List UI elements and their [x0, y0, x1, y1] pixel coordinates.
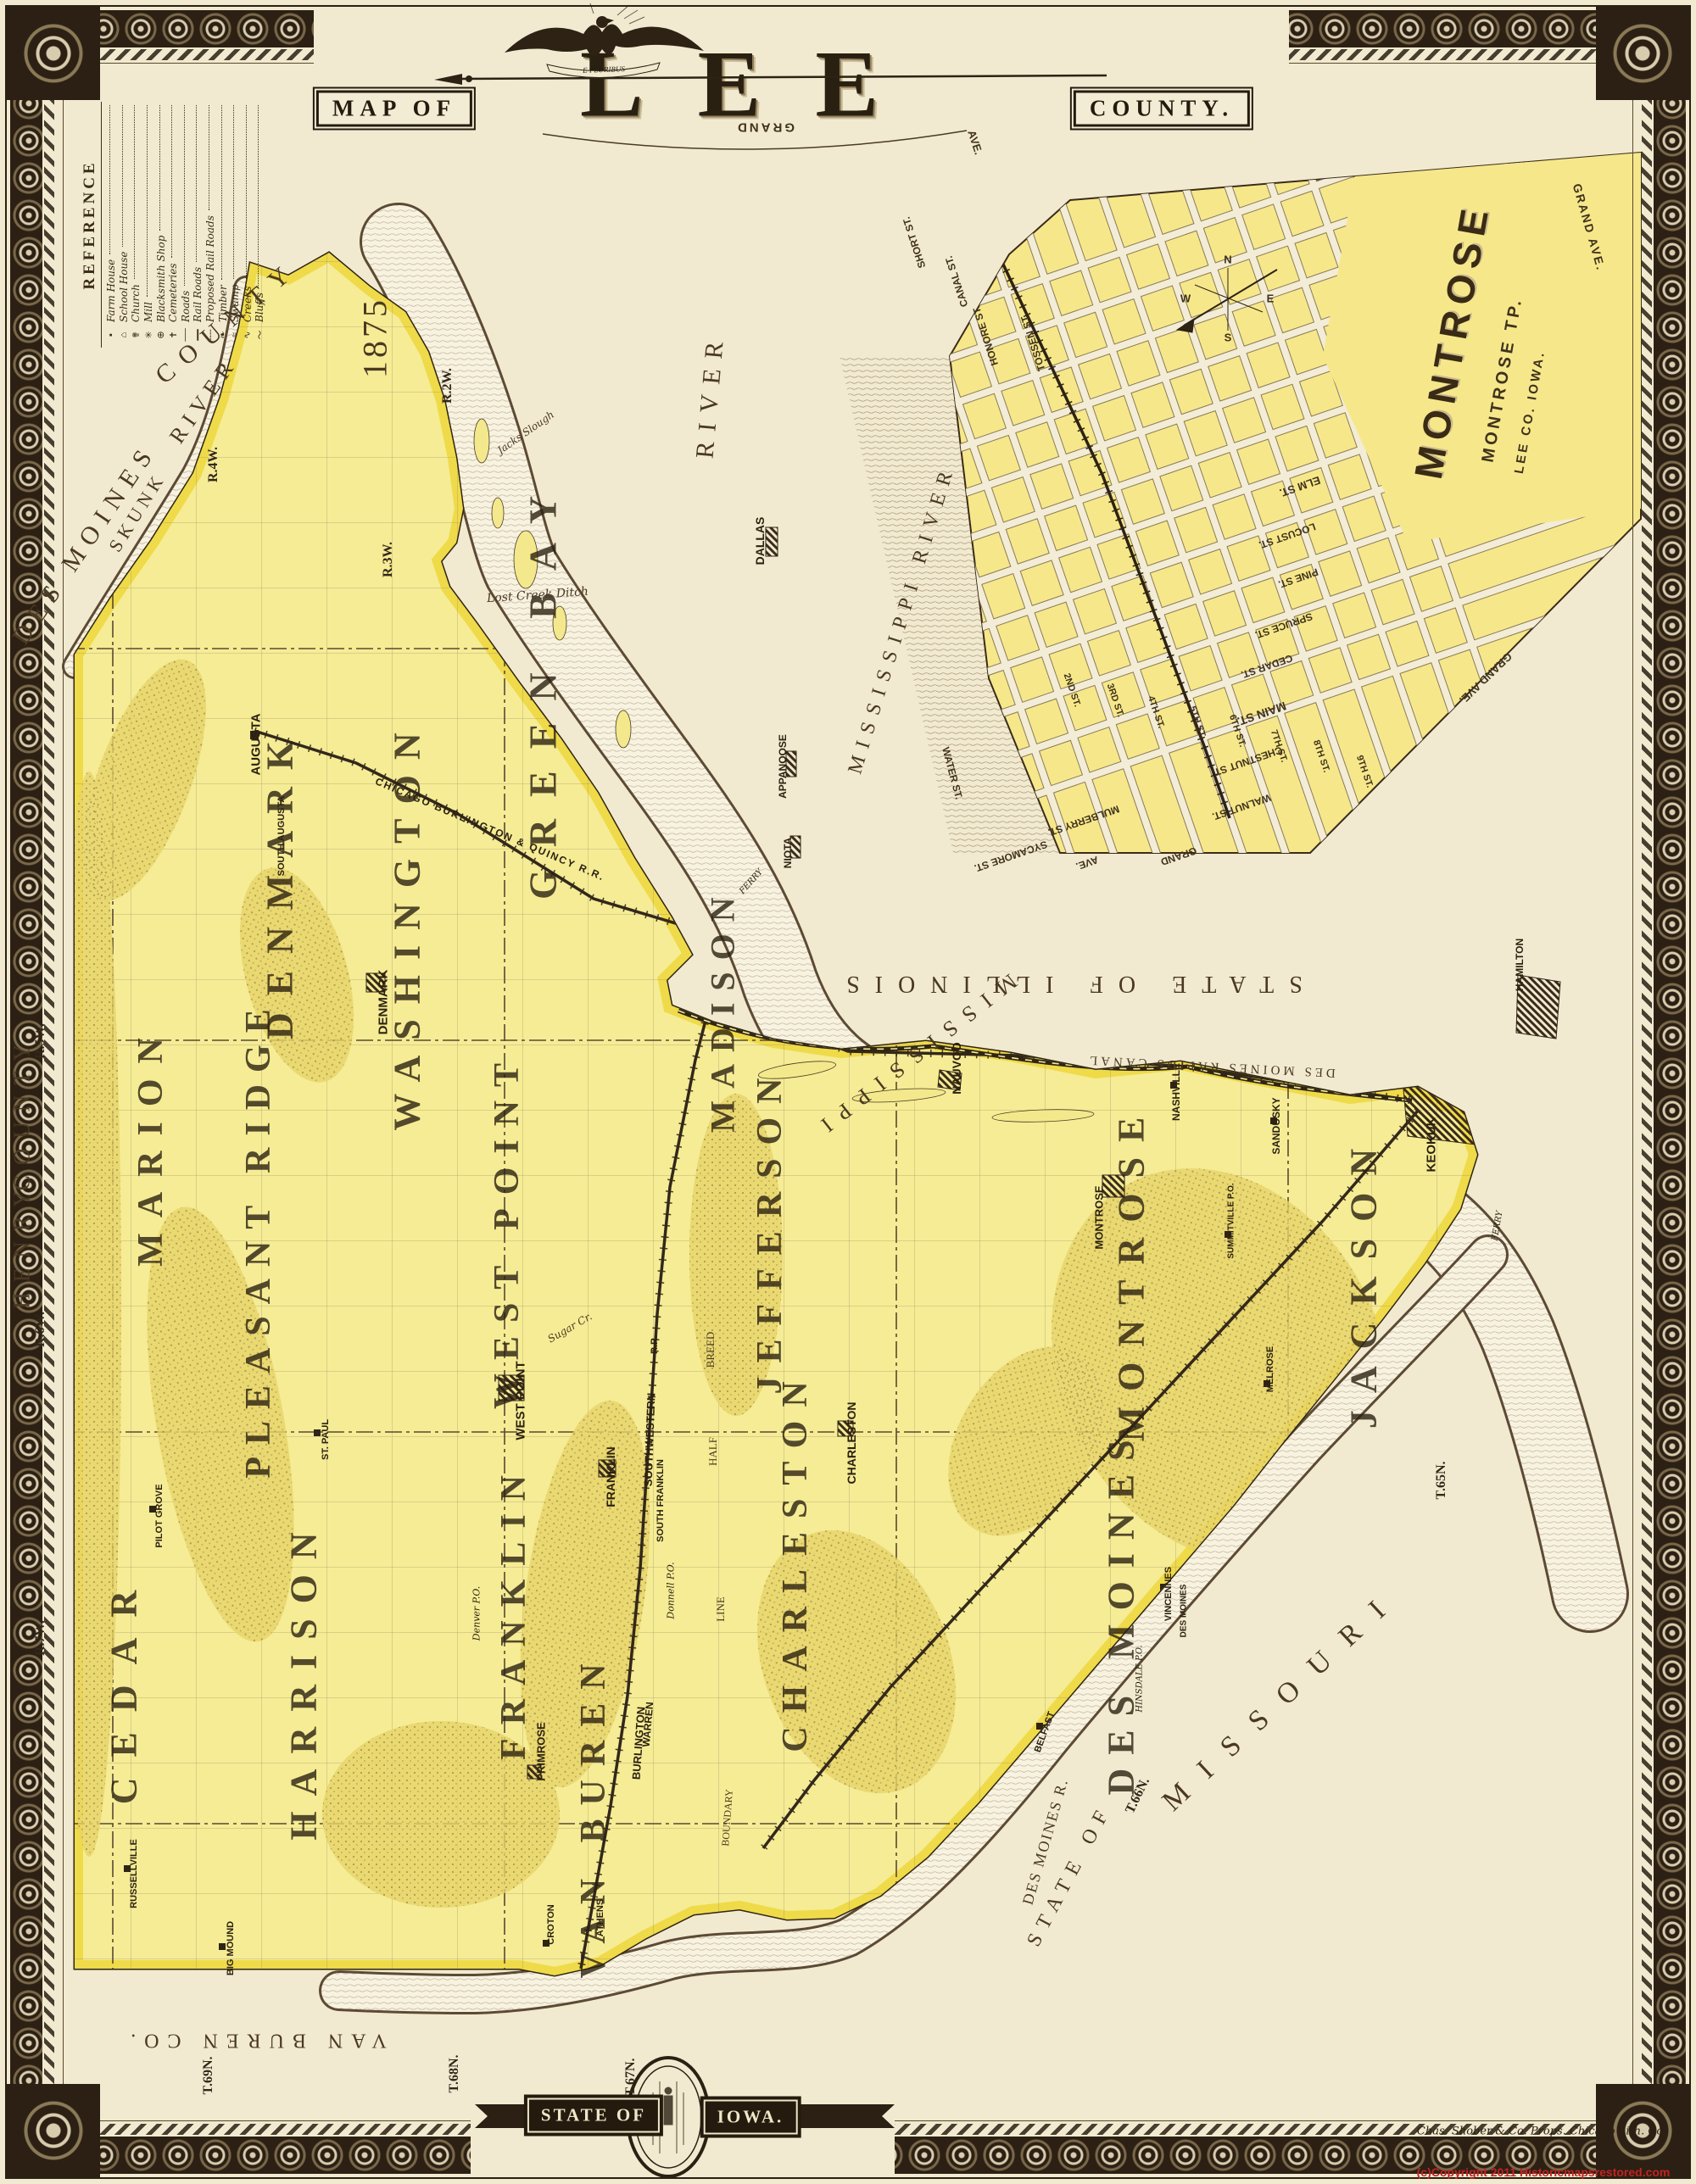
- legend-heading: REFERENCE: [81, 102, 102, 348]
- legend-row: ✟Church: [130, 102, 142, 348]
- legend-row: ╌╌Proposed Rail Roads: [204, 102, 217, 348]
- legend-row: ⌂School House: [118, 102, 131, 348]
- border-lace-right: [1642, 47, 1652, 2137]
- legend-row: ⊕Blacksmith Shop: [154, 102, 167, 348]
- border-medallion-top-right: [1596, 7, 1689, 100]
- border-band-left: [10, 10, 42, 2174]
- swamp-icon: ≈: [230, 322, 240, 348]
- farmhouse-icon: ▪: [106, 322, 116, 348]
- legend-row: 〜Bluffs: [254, 102, 266, 348]
- schoolhouse-icon: ⌂: [119, 322, 129, 348]
- legend-row: ▪Farm House: [105, 102, 118, 348]
- mill-icon: ✳: [143, 322, 154, 348]
- timber-icon: ❧: [217, 322, 228, 348]
- legend-row: ✳Mill: [142, 102, 155, 348]
- blacksmith-icon: ⊕: [155, 322, 166, 348]
- legend-row: ━━Rail Roads: [192, 102, 204, 348]
- title-banner-clearing: [314, 7, 1289, 144]
- legend-row: ≈Swamp: [229, 102, 242, 348]
- historic-map-page: { "page": { "title_left": "MAP OF", "tit…: [0, 0, 1696, 2184]
- legend-row: ∿Creeks: [242, 102, 254, 348]
- creek-icon: ∿: [242, 322, 253, 348]
- cemetery-icon: ✝: [168, 322, 179, 348]
- border-medallion-bottom-left: [7, 2084, 100, 2177]
- footer-banner-clearing: [471, 2062, 895, 2177]
- legend-row: ❧Timber: [216, 102, 229, 348]
- map-legend: REFERENCE ▪Farm House ⌂School House ✟Chu…: [81, 102, 259, 348]
- border-lace-left: [44, 47, 54, 2137]
- legend-row: ✝Cemeteries: [167, 102, 180, 348]
- railroad-symbol: ━━: [192, 322, 204, 348]
- border-medallion-top-left: [7, 7, 100, 100]
- bluff-icon: 〜: [253, 322, 266, 348]
- church-icon: ✟: [131, 322, 142, 348]
- road-symbol: ──: [181, 322, 191, 348]
- border-band-right: [1654, 10, 1686, 2174]
- border-medallion-bottom-right: [1596, 2084, 1689, 2177]
- proposed-railroad-symbol: ╌╌: [205, 322, 216, 348]
- legend-row: ──Roads: [180, 102, 192, 348]
